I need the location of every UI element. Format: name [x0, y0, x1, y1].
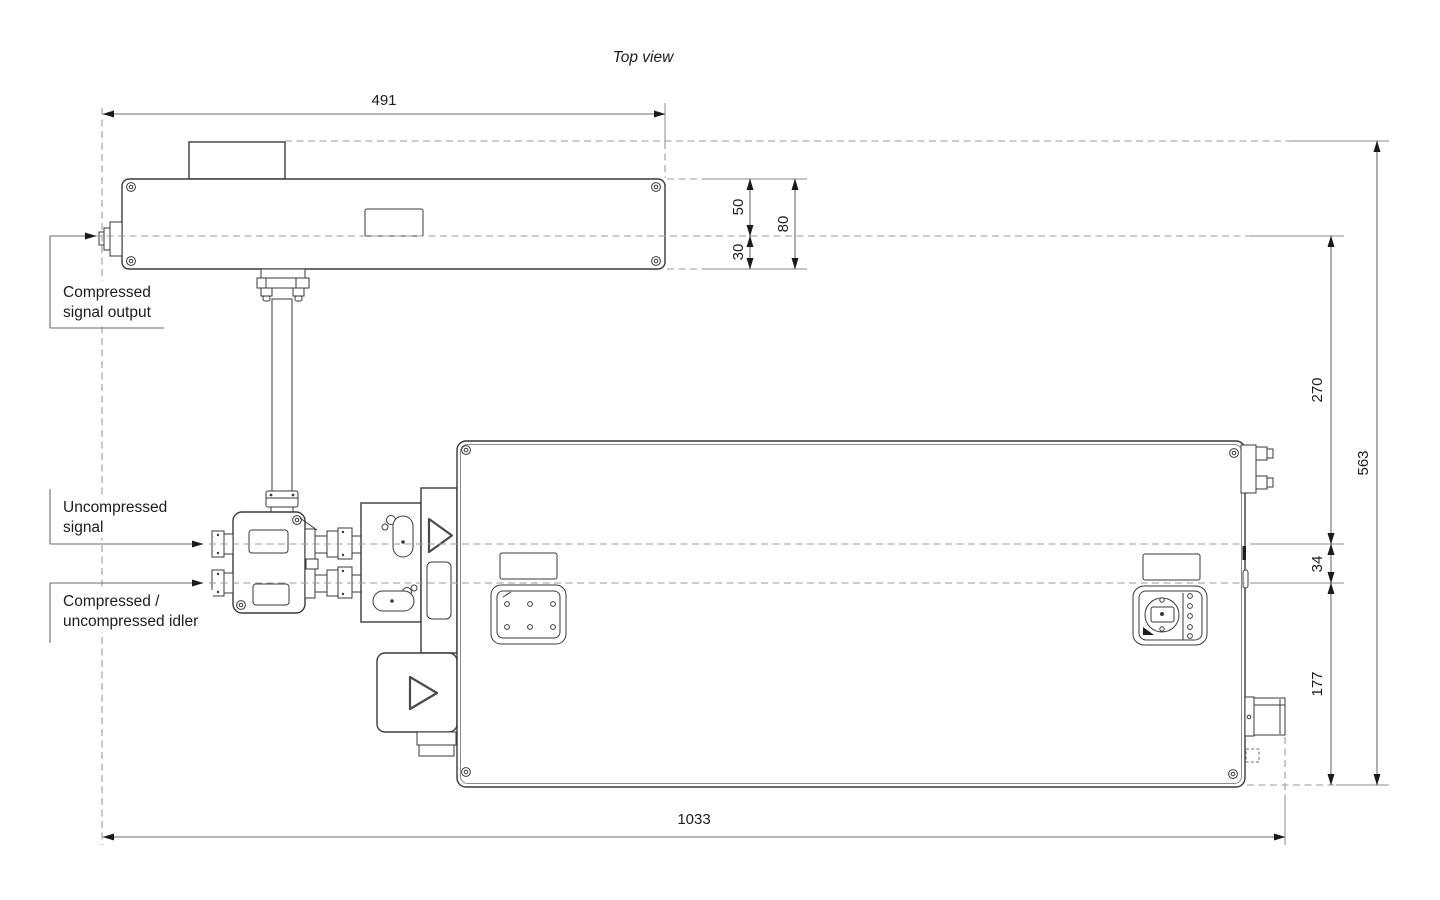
label-compressed-output-line1: Compressed	[63, 284, 151, 301]
dim-value-177: 177	[1309, 671, 1326, 696]
corner-screw-icon	[237, 601, 246, 610]
corner-screw-icon	[1230, 449, 1239, 458]
callout-labels: Compressed signal output Uncompressed si…	[50, 236, 213, 643]
label-idler-line2: uncompressed idler	[63, 613, 198, 630]
label-idler-line1: Compressed /	[63, 593, 160, 610]
main-unit-window-left	[500, 553, 557, 579]
junction-box-window	[253, 584, 289, 605]
corner-screw-icon	[652, 257, 661, 266]
corner-screw-icon	[462, 446, 471, 455]
junction-box-assembly	[212, 488, 457, 756]
bottom-right-connector	[1245, 697, 1285, 762]
label-uncompressed-line1: Uncompressed	[63, 499, 167, 516]
dim-value-270: 270	[1309, 377, 1326, 402]
dim-value-30: 30	[730, 244, 747, 261]
junction-box-window	[249, 530, 288, 553]
label-compressed-output-line2: signal output	[63, 304, 152, 321]
top-right-connectors	[1241, 445, 1273, 493]
label-uncompressed-line2: signal	[63, 519, 104, 536]
top-unit-window	[365, 209, 423, 236]
column-collar	[266, 491, 298, 512]
technical-drawing-page: 491 50 30 80 270 34 177 563 1033	[0, 0, 1440, 900]
dim-value-50: 50	[730, 199, 747, 216]
lower-bracket-foot	[417, 732, 456, 745]
main-unit	[457, 441, 1285, 787]
corner-screw-icon	[293, 516, 302, 525]
dim-value-1033: 1033	[677, 811, 710, 828]
dim-value-34: 34	[1309, 556, 1326, 573]
corner-screw-icon	[1229, 770, 1238, 779]
corner-screw-icon	[127, 183, 136, 192]
connector-panel-left	[491, 585, 566, 644]
callout-uncompressed-signal: Uncompressed signal	[50, 489, 203, 544]
corner-screw-icon	[462, 768, 471, 777]
mount-bracket	[257, 269, 309, 301]
support-column	[272, 299, 292, 491]
dim-value-491: 491	[371, 92, 396, 109]
connector-panel-right	[1133, 586, 1207, 645]
top-unit-tab	[189, 142, 285, 179]
callout-idler: Compressed / uncompressed idler	[50, 583, 213, 643]
edge-bump	[1243, 570, 1248, 588]
dim-value-80: 80	[775, 216, 792, 233]
lower-bracket	[377, 653, 457, 732]
entry-block-window	[427, 562, 451, 619]
corner-screw-icon	[652, 183, 661, 192]
lower-bracket-foot	[419, 745, 454, 756]
view-title: Top view	[613, 49, 675, 66]
dim-value-563: 563	[1355, 450, 1372, 475]
corner-screw-icon	[127, 257, 136, 266]
drawing-svg: 491 50 30 80 270 34 177 563 1033	[0, 0, 1440, 900]
main-unit-window-right	[1143, 554, 1200, 580]
main-housing	[457, 441, 1245, 787]
edge-marker	[1243, 546, 1247, 560]
